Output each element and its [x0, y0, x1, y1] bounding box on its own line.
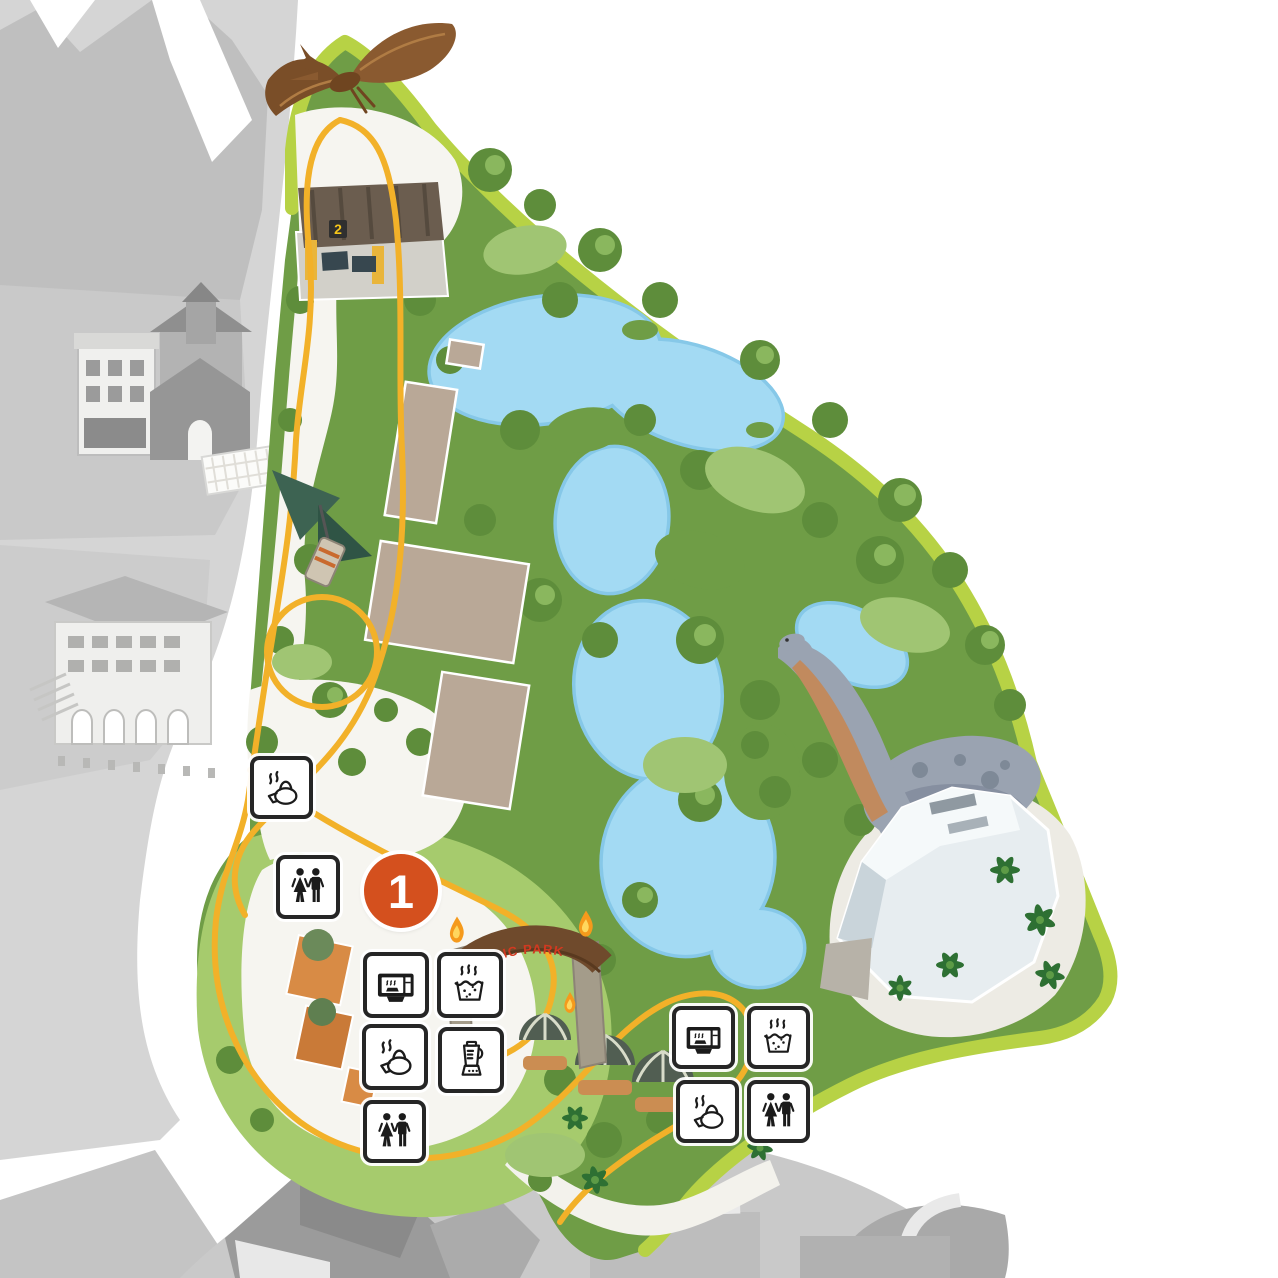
restroom-glyph: [756, 1089, 801, 1134]
microwave-icon[interactable]: [363, 952, 429, 1018]
map-canvas: 2: [0, 0, 1278, 1278]
hot-water-glyph: [446, 961, 494, 1009]
canopy-station: 2: [296, 182, 448, 300]
zone-marker-1[interactable]: 1: [364, 854, 438, 928]
microwave-glyph: [681, 1015, 726, 1060]
hot-kettle-glyph: [371, 1033, 419, 1081]
hot-kettle-glyph: [259, 765, 304, 810]
restroom-glyph: [372, 1109, 417, 1154]
hot-kettle-icon[interactable]: [676, 1080, 739, 1143]
restroom-icon[interactable]: [747, 1080, 810, 1143]
hot-kettle-glyph: [685, 1089, 730, 1134]
hot-water-icon[interactable]: [437, 952, 503, 1018]
station-number-badge: 2: [329, 220, 347, 238]
restroom-glyph: [285, 864, 331, 910]
park-map: 2: [0, 0, 1278, 1278]
hot-water-icon[interactable]: [747, 1006, 810, 1069]
hot-water-glyph: [756, 1015, 801, 1060]
microwave-glyph: [372, 961, 420, 1009]
blender-glyph: [447, 1036, 495, 1084]
microwave-icon[interactable]: [672, 1006, 735, 1069]
svg-text:2: 2: [334, 221, 342, 237]
blender-icon[interactable]: [438, 1027, 504, 1093]
hot-kettle-icon[interactable]: [362, 1024, 428, 1090]
restroom-icon[interactable]: [276, 855, 340, 919]
restroom-icon[interactable]: [363, 1100, 426, 1163]
hot-kettle-icon[interactable]: [250, 756, 313, 819]
